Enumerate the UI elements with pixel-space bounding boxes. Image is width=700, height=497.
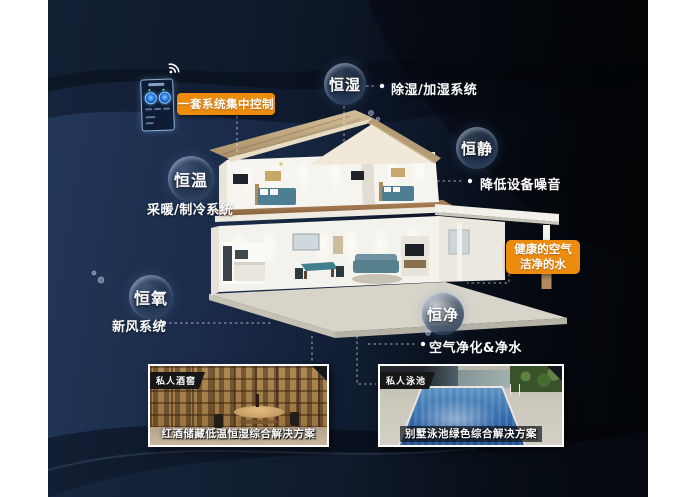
wine-cellar-card: 私人酒窖 红酒储藏低温恒湿综合解决方案 <box>148 364 329 447</box>
pool-card-badge: 私人泳池 <box>380 372 435 389</box>
bubble-constant-purity: 恒净 <box>422 293 464 335</box>
wine-card-caption: 红酒储藏低温恒湿综合解决方案 <box>150 426 327 441</box>
bubble-constant-oxygen: 恒氧 <box>129 275 173 319</box>
central-control-callout: 一套系统集中控制 <box>177 93 275 115</box>
note-dehumidify-humidify-system: 除湿/加湿系统 <box>391 79 477 98</box>
wine-table <box>234 406 284 418</box>
note-heating-cooling-system: 采暖/制冷系统 <box>147 199 233 218</box>
healthy-line-1: 健康的空气 <box>514 242 572 257</box>
control-knob <box>145 92 157 104</box>
note-air-purification-water: 空气净化&净水 <box>429 337 522 356</box>
healthy-line-2: 洁净的水 <box>520 257 566 272</box>
panel-header-bar <box>148 83 164 86</box>
control-knob <box>159 92 171 104</box>
corner-fold <box>312 366 327 381</box>
status-led <box>162 89 164 91</box>
note-reduce-equipment-noise: 降低设备噪音 <box>480 174 561 193</box>
note-fresh-air-system: 新风系统 <box>112 316 166 335</box>
bubble-constant-temperature: 恒温 <box>168 156 214 202</box>
pool-ladder <box>510 384 520 396</box>
house-cutaway-illustration <box>205 110 570 365</box>
pool-card-caption: 别墅泳池绿色综合解决方案 <box>380 426 562 441</box>
status-led <box>148 89 150 91</box>
bubble-constant-quiet: 恒静 <box>456 127 498 169</box>
wine-card-badge: 私人酒窖 <box>150 372 205 389</box>
pool-card: 私人泳池 别墅泳池绿色综合解决方案 <box>378 364 564 447</box>
bubble-constant-humidity: 恒湿 <box>324 63 366 105</box>
healthy-air-water-callout: 健康的空气 洁净的水 <box>506 240 580 274</box>
corner-fold <box>547 366 562 381</box>
infographic-stage: 一套系统集中控制 健康的空气 洁净的水 恒湿 恒静 恒温 恒氧 恒净 除湿/加湿… <box>0 0 700 497</box>
control-panel-device <box>140 78 175 131</box>
